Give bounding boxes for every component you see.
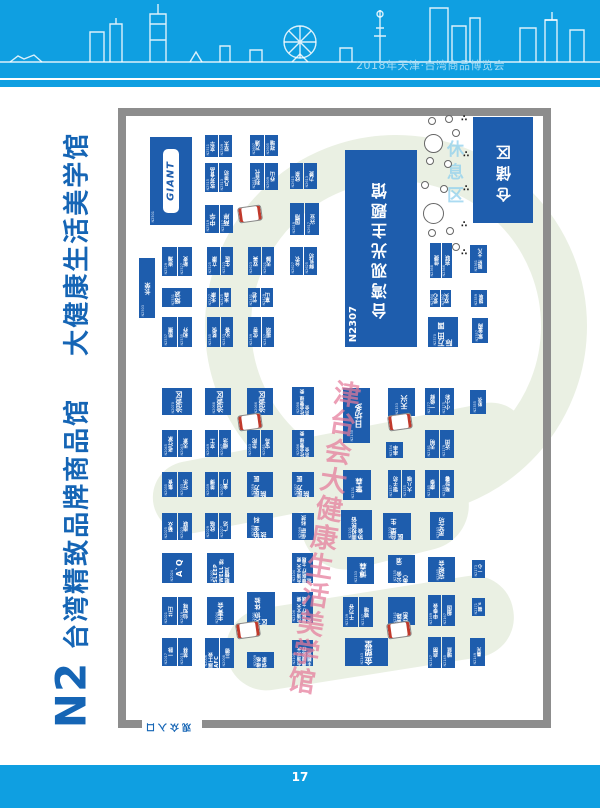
booth-N2053: N2053华陀N2051宝岛 bbox=[247, 430, 273, 457]
booth-name: 猫's bbox=[478, 602, 483, 611]
booth-name: 玫芳食品 bbox=[211, 167, 217, 188]
booth-N2006: N2006展工会 AFCN2008三德 bbox=[205, 638, 234, 668]
booth-name: 天明 bbox=[431, 439, 437, 450]
booth-name: 洽谈区 bbox=[216, 391, 224, 413]
booth-N2503: N2503长荣 bbox=[139, 258, 155, 318]
booth-cell: N2355彩衣 bbox=[470, 390, 486, 414]
booth-N2049: N2049京工N2047细活 bbox=[205, 430, 231, 457]
wall-top bbox=[118, 108, 551, 116]
booth-N2515: N2515玫芳食品N2513凡茶坊 bbox=[205, 163, 232, 192]
booth-cell: N2435茗悦 bbox=[207, 317, 220, 347]
booth-name: 细活 bbox=[224, 438, 230, 449]
booth-name: 维格饼家 bbox=[257, 652, 269, 667]
booth-cell: N2517两岸 bbox=[220, 205, 234, 233]
booth-name: 文协 体验区 bbox=[256, 593, 270, 625]
booth-cell: N2185康泰 bbox=[425, 470, 439, 498]
booth-cell: N2043天素 bbox=[178, 430, 193, 457]
booth-name: 大八咖 bbox=[408, 476, 414, 492]
booth-cell: N2019仙知味 bbox=[178, 597, 193, 625]
booth-cell: N2177一级鲜 bbox=[425, 388, 439, 415]
plant-icon: ∴ bbox=[463, 184, 469, 194]
booth-cell: N2611利百代 bbox=[250, 163, 264, 190]
booth-name: 完税会 bbox=[440, 560, 447, 579]
info-desk-icon bbox=[237, 412, 263, 431]
booth-cell: N2059医方 医院 bbox=[247, 472, 273, 497]
booth-name: 启丽 bbox=[434, 647, 440, 658]
booth-N2066: N2066洽谈区 bbox=[247, 388, 273, 415]
booth-cell: N2009维格饼家 bbox=[247, 652, 274, 668]
booth-N2355: N2355彩衣 bbox=[470, 390, 486, 414]
booth-N2017: N2017一脉N2015苗林 bbox=[162, 638, 192, 666]
booth-name: 公会 （酒类） bbox=[397, 556, 410, 583]
booth-cell: N2027广达 bbox=[219, 513, 232, 539]
booth-N2059: N2059医方 医院 bbox=[247, 472, 273, 497]
booth-cell: N2002SLEEP WELL 舒眠精灵 bbox=[207, 553, 234, 583]
rest-table-circle bbox=[444, 160, 452, 168]
booth-name: 社会管理 委员会 bbox=[300, 388, 310, 415]
booth-cell: N2623双美 bbox=[248, 247, 261, 275]
wall-bottom bbox=[202, 720, 551, 728]
booth-cell: N2155大八咖 bbox=[402, 470, 415, 498]
booth-N2357: N2357紫金阁 bbox=[472, 318, 488, 343]
booth-cell: N2605祥瑞 bbox=[265, 135, 279, 156]
booth-N2615: N2615欣泉N2613力菱 bbox=[290, 163, 317, 189]
booth-N2361: N2361毅轩 大凡 bbox=[470, 245, 487, 273]
booth-N2147: N2147启丽N2145瑞蓝 bbox=[428, 637, 455, 668]
booth-name: 中华 bbox=[211, 213, 218, 226]
booth-cell: N2613力菱 bbox=[304, 163, 317, 189]
booth-N2435: N2435茗悦N2433沁香 bbox=[207, 317, 233, 347]
booth-cell: N2169申泰会 bbox=[428, 595, 441, 626]
booth-cell: N2157银子坊 bbox=[388, 470, 401, 498]
booth-code: N2503 bbox=[142, 305, 146, 317]
booth-cell: N2145瑞蓝 bbox=[442, 637, 455, 668]
booth-N2368: N2368佳捷N2366完联 bbox=[430, 243, 452, 278]
booth-N2627: N2627台农N2625鲜乳坊 bbox=[290, 247, 317, 275]
booth-cell: N2167相国 bbox=[442, 595, 455, 626]
booth-N2165: N2165完税会 bbox=[428, 557, 455, 582]
booth-name: 欣泉 bbox=[296, 171, 302, 182]
booth-N2370: N2370万田 国际 bbox=[428, 317, 458, 347]
top-banner: 2018年天津·台湾商品博览会 bbox=[0, 0, 600, 78]
rest-table-circle bbox=[423, 203, 444, 224]
booth-N2143: N2143金塑堂 bbox=[345, 638, 388, 666]
booth-cell: N2024A`Q bbox=[162, 553, 192, 583]
booth-name: 竹君 bbox=[253, 292, 259, 303]
booth-cell: N2537凯撒 bbox=[162, 317, 177, 347]
booth-name: 瑞蓝 bbox=[448, 647, 454, 658]
booth-cell: N2137锦瑞 bbox=[359, 597, 374, 627]
booth-cell: N2098社会管理 委员会 bbox=[292, 387, 314, 415]
booth-N2619: N2619国翔N2617兴业 bbox=[290, 203, 319, 235]
booth-cell: N2181天明 bbox=[425, 430, 439, 458]
booth-N2139: N2139千巧谷N2137锦瑞 bbox=[343, 597, 373, 627]
booth-name: 灵芝坊 bbox=[440, 517, 447, 536]
booth-cell: N2029欣临 bbox=[205, 513, 218, 539]
booth-cell: N2021兰山 bbox=[162, 597, 177, 625]
info-desk-icon bbox=[235, 620, 261, 639]
skyline-art bbox=[0, 0, 600, 78]
wall-bottom-stub bbox=[118, 720, 142, 728]
booth-name: 集食 bbox=[169, 479, 175, 490]
giant-logo: GIANT bbox=[166, 161, 177, 201]
booth-name: 金塑堂 bbox=[364, 640, 373, 665]
storage-label: 仓储区 bbox=[493, 139, 514, 202]
booth-cell: N2101南投民俗 协会 bbox=[341, 510, 372, 540]
booth-cell: N2001文协 体验区 bbox=[247, 592, 275, 625]
booth-name: 京华 bbox=[211, 141, 217, 152]
booth-N2163: N2163灵芝坊 bbox=[430, 512, 453, 540]
booth-N2157: N2157银子坊N2155大八咖 bbox=[388, 470, 415, 498]
booth-cell: N2008三德 bbox=[220, 638, 234, 668]
booth-name: 万通 bbox=[256, 140, 262, 151]
booth-N2529: N2529崇瀚N2527新麦 bbox=[162, 247, 192, 276]
booth-N2359: N2359银联 bbox=[471, 290, 487, 307]
booth-name: 一级鲜 bbox=[431, 394, 437, 410]
plant-icon: ∴ bbox=[461, 220, 467, 230]
booth-name: 台塑 生医 bbox=[392, 514, 406, 540]
booth-N2009: N2009维格饼家 bbox=[247, 652, 274, 668]
info-desk-icon bbox=[386, 620, 412, 639]
booth-name: 葡众 bbox=[169, 521, 175, 532]
booth-name: 晨光 bbox=[477, 647, 482, 657]
booth-N2103: N2103台塑 生医 bbox=[383, 513, 411, 540]
booth-cell: N2149晨光 bbox=[470, 638, 485, 666]
booth-N2025: N2025葡众N2023南联 bbox=[162, 513, 192, 540]
hall-title-line1: 台湾精致品牌商品馆 bbox=[57, 398, 94, 650]
booth-name: 博森 bbox=[359, 563, 367, 578]
booth-name: 天兴 bbox=[400, 395, 408, 410]
booth-cell: N2183裕珍馨 bbox=[440, 470, 454, 498]
booth-N2519: N2519中华N2517两岸 bbox=[205, 205, 233, 233]
footer-bar: 17 bbox=[0, 765, 600, 808]
booth-name: 台农 bbox=[296, 256, 302, 267]
booth-name: 国翔 bbox=[296, 214, 302, 225]
booth-cell: N2364爱心 bbox=[430, 290, 440, 307]
rest-table-circle bbox=[440, 185, 448, 193]
booth-cell: N2433沁香 bbox=[221, 317, 234, 347]
booth-cell: N2047细活 bbox=[219, 430, 232, 457]
booth-cell: N2370万田 国际 bbox=[428, 317, 458, 347]
booth-N2169: N2169申泰会N2167相国 bbox=[428, 595, 455, 626]
rest-table-circle bbox=[446, 227, 454, 235]
booth-name: 一脉 bbox=[169, 647, 175, 658]
banner-title: 2018年天津·台湾商品博览会 bbox=[356, 57, 505, 73]
booth-name: 长荣 bbox=[146, 282, 153, 295]
booth-name: 康泰 bbox=[431, 479, 437, 490]
booth-N2181: N2181天明N2179近田 bbox=[425, 430, 454, 458]
booth-cell: N2033行乐 bbox=[178, 472, 193, 497]
booth-cell: N2055铂金 科技 bbox=[247, 513, 273, 538]
booth-cell: N2511京华 bbox=[205, 135, 218, 157]
booth-cell: N2431竹君 bbox=[248, 288, 260, 307]
booth-N2431: N2431竹君N2429富山 bbox=[248, 288, 273, 307]
booth-cell: N2163灵芝坊 bbox=[430, 512, 453, 540]
booth-name: 金门 bbox=[224, 479, 230, 490]
booth-cell: N2617兴业 bbox=[305, 203, 319, 235]
booth-name: 行乐 bbox=[184, 479, 190, 490]
booth-name: 和乔 bbox=[184, 327, 190, 338]
booth-cell: N2023南联 bbox=[178, 513, 193, 540]
booth-cell: N2139千巧谷 bbox=[343, 597, 358, 627]
booth-name: 新麦 bbox=[184, 256, 190, 267]
hall-title-line2: 大健康生活美学馆 bbox=[57, 132, 94, 356]
booth-cell: N2615欣泉 bbox=[290, 163, 303, 189]
plant-icon: ∴ bbox=[461, 114, 467, 124]
booth-name: 仙知味 bbox=[184, 603, 190, 619]
booth-code: N2368 bbox=[431, 265, 435, 277]
booth-name: 优杏 bbox=[254, 327, 260, 338]
booth-name: 洽谈区 bbox=[258, 391, 266, 413]
giant-booth-code: N2501 bbox=[151, 211, 155, 223]
booth-name: 擎森 bbox=[355, 478, 363, 493]
booth-N2525: N2525立康N2523生医 bbox=[207, 247, 233, 275]
booth-N2135: N2135公会 （酒类） bbox=[388, 555, 415, 583]
booth-name: 爱心 bbox=[434, 293, 440, 304]
booth-cell: N2531烟波 bbox=[162, 288, 192, 307]
booth-cell: N2037金门 bbox=[219, 472, 232, 497]
booth-cell: N2179近田 bbox=[440, 430, 454, 458]
booth-cell: N2527新麦 bbox=[178, 247, 193, 276]
theme-hall: 台湾观光主题馆 N2307 bbox=[345, 150, 417, 347]
booth-cell: N2015苗林 bbox=[178, 638, 193, 666]
booth-name: 小小彩 bbox=[446, 394, 452, 410]
booth-name: 佳捷 bbox=[435, 255, 441, 266]
booth-N2611: N2611利百代N2609乔山 bbox=[250, 163, 278, 190]
booth-cell: N2621天藤 bbox=[262, 247, 275, 275]
booth-N2537: N2537凯撒N2535和乔 bbox=[162, 317, 192, 347]
rest-table-circle bbox=[421, 181, 429, 189]
booth-name: 锦瑞 bbox=[365, 607, 371, 618]
booth-cell: N2173一心 bbox=[472, 560, 485, 578]
booth-cell: N2143金塑堂 bbox=[345, 638, 388, 666]
booth-name: 紫金阁 bbox=[479, 323, 485, 339]
booth-N2002: N2002SLEEP WELL 舒眠精灵 bbox=[207, 553, 234, 583]
theme-hall-code: N2307 bbox=[348, 306, 359, 342]
booth-name: 彩衣 bbox=[478, 397, 483, 407]
storage-area: 仓储区 bbox=[473, 117, 533, 223]
booth-name: A`Q bbox=[175, 559, 184, 577]
booth-N2055: N2055铂金 科技 bbox=[247, 513, 273, 538]
booth-giant: GIANT N2501 bbox=[150, 137, 192, 225]
booth-cell: N2437振颂 bbox=[262, 317, 275, 347]
booth-name: 裕珍馨 bbox=[446, 476, 452, 492]
booth-code: N2366 bbox=[443, 265, 447, 277]
booth-name: 利百代 bbox=[256, 169, 262, 185]
booth-cell: N2051宝岛 bbox=[261, 430, 274, 457]
booth-cell: N2147启丽 bbox=[428, 637, 441, 668]
booth-cell: N2066洽谈区 bbox=[247, 388, 273, 415]
booth-cell: N2006展工会 AFC bbox=[205, 638, 219, 668]
rest-table-circle bbox=[428, 117, 436, 125]
booth-name: 万田 国际 bbox=[437, 318, 453, 347]
booth-cell: N2427禾康 bbox=[207, 288, 219, 307]
booth-cell: N2017一脉 bbox=[162, 638, 177, 666]
booth-cell: N2529崇瀚 bbox=[162, 247, 177, 276]
booth-cell: N2535和乔 bbox=[178, 317, 193, 347]
booth-N2101: N2101南投民俗 协会 bbox=[341, 510, 372, 540]
booth-name: 兰山 bbox=[169, 606, 175, 617]
booth-N2070: N2070洽谈区 bbox=[162, 388, 192, 415]
booth-name: 茗悦 bbox=[213, 327, 219, 338]
booth-N2427: N2427禾康N2425米森 bbox=[207, 288, 231, 307]
booth-name: 京工 bbox=[211, 438, 217, 449]
booth-N2045: N2045老行家N2043天素 bbox=[162, 430, 192, 457]
booth-N2068: N2068洽谈区 bbox=[205, 388, 231, 415]
booth-N2511: N2511京华N2509亚太 bbox=[205, 135, 232, 157]
wall-right bbox=[543, 108, 551, 728]
booth-N2098: N2098社会管理 委员会 bbox=[292, 387, 314, 415]
booth-cell: N2503长荣 bbox=[139, 258, 155, 318]
booth-cell: N2439优杏 bbox=[248, 317, 261, 347]
booth-N2364: N2364爱心N2362双头 bbox=[430, 290, 451, 307]
booth-N2149: N2149晨光 bbox=[470, 638, 485, 666]
booth-cell: N2035集食 bbox=[162, 472, 177, 497]
visitor-entrance-label: 观众入口 bbox=[143, 721, 191, 734]
booth-cell: N2362双头 bbox=[441, 290, 451, 307]
booth-name: 米森 bbox=[225, 292, 231, 303]
booth-N2039: N2039茶博N2037金门 bbox=[205, 472, 231, 497]
booth-name: 苗林 bbox=[184, 647, 190, 658]
booth-cell: N2625鲜乳坊 bbox=[304, 247, 317, 275]
booth-cell: N2153天兴 bbox=[388, 388, 415, 416]
booth-name: 串串 bbox=[394, 445, 400, 456]
booth-N2029: N2029欣临N2027广达 bbox=[205, 513, 231, 539]
booth-name: 鲜乳坊 bbox=[310, 253, 316, 269]
plant-icon: ∴ bbox=[461, 248, 467, 258]
booth-cell: N2357紫金阁 bbox=[472, 318, 488, 343]
booth-name: 禾康 bbox=[212, 292, 218, 303]
booth-name: 祥瑞 bbox=[271, 140, 277, 151]
booth-name: 富山 bbox=[266, 292, 272, 303]
booth-cell: N2359银联 bbox=[471, 290, 487, 307]
booth-cell: N2070洽谈区 bbox=[162, 388, 192, 415]
booth-cell: N2515玫芳食品 bbox=[205, 163, 218, 192]
booth-cell: N2425米森 bbox=[220, 288, 232, 307]
booth-name: 铂金 科技 bbox=[255, 514, 269, 538]
booth-name: 一心 bbox=[478, 564, 483, 574]
booth-name: 烟波 bbox=[176, 291, 183, 304]
booth-cell: N2039茶博 bbox=[205, 472, 218, 497]
booth-cell: N2133博森 bbox=[347, 557, 374, 584]
booth-name: 三德 bbox=[226, 648, 232, 659]
floor-decor-band bbox=[220, 570, 519, 696]
booth-N2173: N2173一心 bbox=[472, 560, 485, 578]
booth-name: 天素 bbox=[184, 438, 190, 449]
booth-N2035: N2035集食N2033行乐 bbox=[162, 472, 192, 497]
booth-cell: N2025葡众 bbox=[162, 513, 177, 540]
booth-name: 银联 bbox=[479, 294, 484, 304]
booth-cell: N2068洽谈区 bbox=[205, 388, 231, 415]
booth-name: 毅轩 大凡 bbox=[478, 248, 483, 269]
booth-name: 两岸 bbox=[225, 213, 232, 226]
booth-N2154: N2154串串 bbox=[386, 442, 403, 458]
booth-name: 广达 bbox=[224, 521, 230, 532]
booth-cell: N2049京工 bbox=[205, 430, 218, 457]
booth-N2021: N2021兰山N2019仙知味 bbox=[162, 597, 192, 625]
banner-divider-line bbox=[0, 80, 600, 87]
booth-N2623: N2623双美N2621天藤 bbox=[248, 247, 274, 275]
booth-name: SLEEP WELL 舒眠精灵 bbox=[214, 554, 231, 583]
booth-cell: N2171猫's bbox=[472, 598, 485, 616]
booth-name: 医方 医院 bbox=[255, 473, 269, 497]
booth-name: 老行家 bbox=[169, 436, 175, 452]
booth-cell: N2004主青会 bbox=[207, 597, 234, 625]
booth-name: 欣临 bbox=[211, 521, 217, 532]
info-desk-icon bbox=[237, 204, 263, 223]
booth-cell: N2525立康 bbox=[207, 247, 220, 275]
booth-name: 展工会 AFC bbox=[209, 639, 220, 668]
booth-N2439: N2439优杏N2437振颂 bbox=[248, 317, 274, 347]
booth-name: 千巧谷 bbox=[350, 604, 356, 620]
booth-name: 洽谈区 bbox=[175, 391, 183, 413]
booth-cell: N2619国翔 bbox=[290, 203, 304, 235]
booth-cell: N2103台塑 生医 bbox=[383, 513, 411, 540]
booth-name: 宝岛 bbox=[266, 438, 272, 449]
hall-number: N2 bbox=[47, 662, 96, 728]
booth-name: 完联 bbox=[446, 255, 452, 266]
booth-name: 南联 bbox=[184, 521, 190, 532]
booth-cell: N2154串串 bbox=[386, 442, 403, 458]
booth-cell: N2053华陀 bbox=[247, 430, 260, 457]
rest-table-circle bbox=[452, 129, 460, 137]
booth-cell: N2165完税会 bbox=[428, 557, 455, 582]
booth-N2531: N2531烟波 bbox=[162, 288, 192, 307]
booth-name: 近田 bbox=[446, 439, 452, 450]
booth-N2171: N2171猫's bbox=[472, 598, 485, 616]
rest-table-circle bbox=[452, 243, 460, 251]
booth-name: 申泰会 bbox=[434, 603, 440, 619]
booth-name: 主青会 bbox=[219, 602, 226, 621]
booth-cell: N2045老行家 bbox=[162, 430, 177, 457]
plant-icon: ∴ bbox=[463, 150, 469, 160]
rest-table-circle bbox=[445, 115, 453, 123]
info-desk-icon bbox=[387, 412, 413, 431]
wall-left bbox=[118, 108, 126, 720]
booth-cell: N2523生医 bbox=[221, 247, 234, 275]
booth-name: 振颂 bbox=[267, 327, 273, 338]
booth-name: 银子坊 bbox=[394, 476, 400, 492]
booth-name: 兴业 bbox=[311, 214, 317, 225]
booth-cell: N2519中华 bbox=[205, 205, 219, 233]
booth-name: 南投民俗 协会 bbox=[352, 511, 365, 540]
booth-N2001: N2001文协 体验区 bbox=[247, 592, 275, 625]
booth-name: 亚太 bbox=[225, 141, 231, 152]
booth-N2096: N2096社会管理 委员会 bbox=[292, 430, 314, 457]
booth-cell: N2361毅轩 大凡 bbox=[470, 245, 487, 273]
booth-name: 茶博 bbox=[211, 479, 217, 490]
booth-name: 立康 bbox=[213, 256, 219, 267]
booth-name: 乔山 bbox=[271, 171, 277, 182]
rest-table-circle bbox=[426, 157, 434, 165]
booth-cell: N2096社会管理 委员会 bbox=[292, 430, 314, 457]
booth-N2004: N2004主青会 bbox=[207, 597, 234, 625]
booth-name: 双美 bbox=[254, 256, 260, 267]
booth-N2024: N2024A`Q bbox=[162, 553, 192, 583]
page-number: 17 bbox=[0, 770, 600, 784]
booth-cell: N2366完联 bbox=[442, 243, 453, 278]
booth-N2177: N2177一级鲜N2175小小彩 bbox=[425, 388, 454, 415]
booth-name: 沁香 bbox=[226, 327, 232, 338]
booth-name: 天藤 bbox=[267, 256, 273, 267]
booth-cell: N2175小小彩 bbox=[440, 388, 454, 415]
booth-name: 生医 bbox=[226, 256, 232, 267]
booth-cell: N2627台农 bbox=[290, 247, 303, 275]
booth-N2133: N2133博森 bbox=[347, 557, 374, 584]
booth-name: 社会管理 委员会 bbox=[300, 431, 310, 457]
booth-name: 双头 bbox=[445, 293, 451, 304]
booth-cell: N2135公会 （酒类） bbox=[388, 555, 415, 583]
